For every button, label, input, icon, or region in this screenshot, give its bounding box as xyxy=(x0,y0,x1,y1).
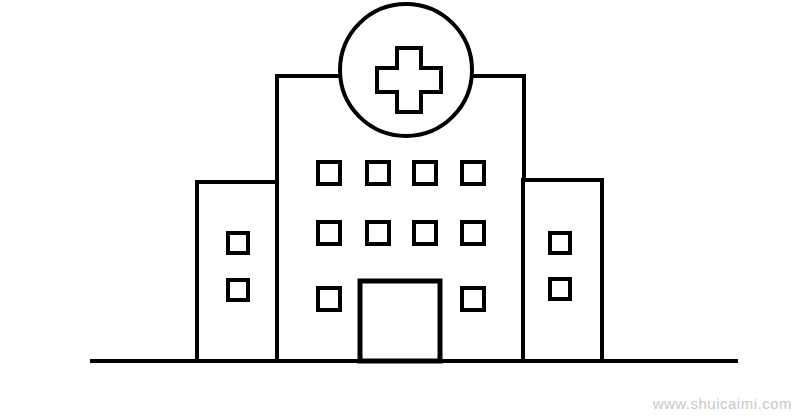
main-building-window xyxy=(318,162,340,184)
main-building-window xyxy=(462,222,484,244)
watermark: www.shuicaimi.com xyxy=(653,395,792,412)
hospital-drawing: www.shuicaimi.com xyxy=(0,0,800,416)
main-building-window xyxy=(318,222,340,244)
main-building-window xyxy=(367,162,389,184)
right-wing-building xyxy=(523,180,602,361)
main-building-window xyxy=(367,222,389,244)
main-building-window xyxy=(462,288,484,310)
main-building-window xyxy=(318,288,340,310)
wing-window xyxy=(550,279,570,299)
wing-window xyxy=(228,280,248,300)
hospital-drawing-svg xyxy=(0,0,800,416)
wing-window xyxy=(228,233,248,253)
wing-window xyxy=(550,233,570,253)
main-building-window xyxy=(414,162,436,184)
left-wing-building xyxy=(197,182,277,361)
main-building-window xyxy=(414,222,436,244)
main-building-window xyxy=(462,162,484,184)
door xyxy=(360,281,440,361)
